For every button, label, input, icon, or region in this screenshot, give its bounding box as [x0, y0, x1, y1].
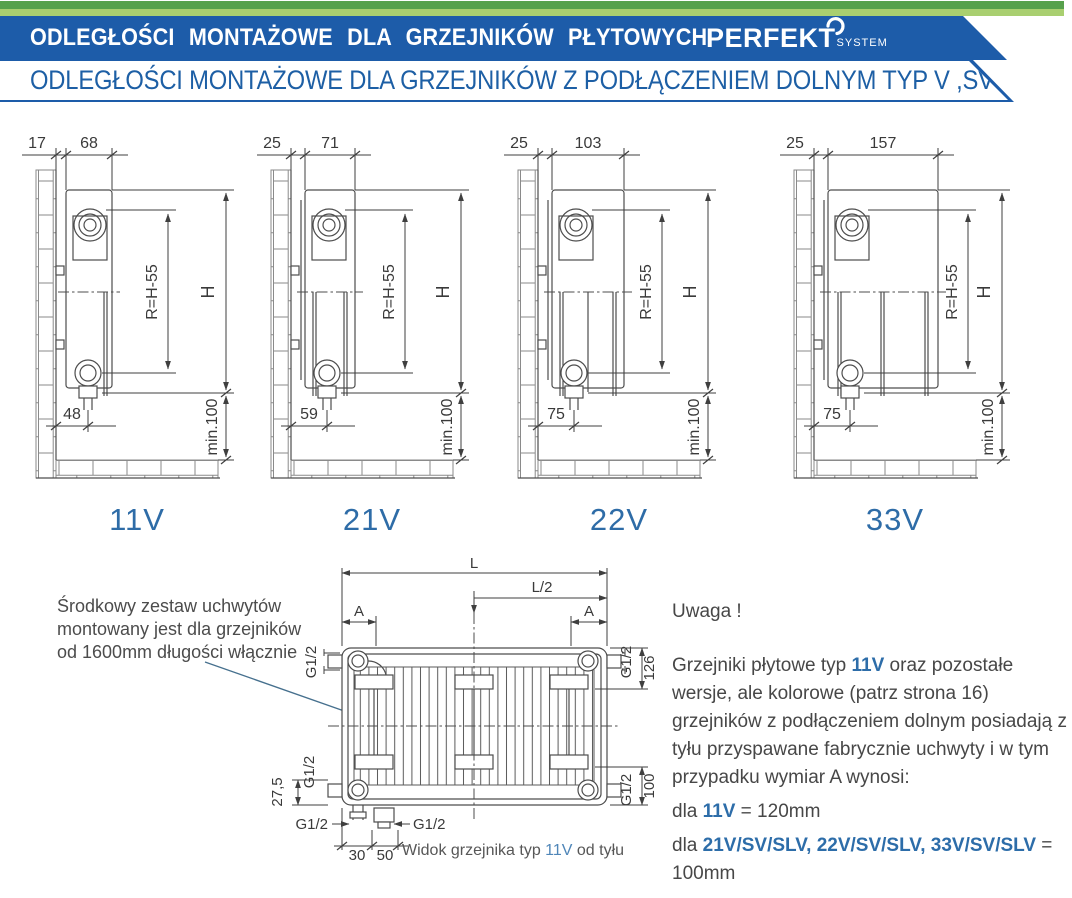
- l3-pre: dla: [672, 835, 703, 856]
- dim-h: H: [198, 286, 218, 299]
- l2-type: 11V: [703, 801, 736, 822]
- bracket: [355, 675, 393, 689]
- dim-50: 50: [377, 847, 394, 864]
- dim-depth: 71: [321, 135, 339, 152]
- dim-100: 100: [641, 773, 658, 798]
- attention-line-11v: dla 11V = 120mm: [672, 798, 1072, 826]
- diagram-22v: 25 103 R=H-55 H min.100 75 22V: [490, 130, 748, 540]
- dim-depth: 157: [870, 135, 897, 152]
- dim-r: R=H-55: [638, 264, 655, 320]
- dim-min: min.100: [980, 398, 997, 455]
- center-bracket-note-line2: montowany jest dla grzejników: [57, 618, 301, 641]
- wall-bracket: [56, 340, 64, 349]
- top-green-strip: [0, 1, 1064, 16]
- center-bracket-note-line1: Środkowy zestaw uchwytów: [57, 595, 301, 618]
- bracket: [355, 755, 393, 769]
- dim-l-half: L/2: [532, 579, 553, 596]
- diagram-33v: 25 157 R=H-55 H min.100 75 33V: [766, 130, 1024, 540]
- dim-min: min.100: [204, 398, 221, 455]
- dim-h: H: [433, 286, 453, 299]
- dim-wall-gap: 25: [786, 135, 804, 152]
- bracket: [550, 755, 588, 769]
- dim-min: min.100: [686, 398, 703, 455]
- diagram-11v: 17 68 R=H-55 H min.100 48 11V: [8, 130, 266, 540]
- attention-paragraph: Grzejniki płytowe typ 11V oraz pozostałe…: [672, 652, 1072, 792]
- attention-p1-type: 11V: [852, 655, 885, 676]
- center-bracket-note-line3: od 1600mm długości włącznie: [57, 641, 301, 664]
- dim-a-right: A: [584, 603, 594, 620]
- logo-hook-icon: [826, 14, 848, 38]
- center-bracket-note: Środkowy zestaw uchwytów montowany jest …: [57, 595, 301, 664]
- dim-a-left: A: [354, 603, 364, 620]
- dim-h: H: [680, 286, 700, 299]
- wall-floor-edges: [36, 170, 220, 478]
- type-label-11v: 11V: [8, 502, 266, 538]
- spec-sheet-page: ODLEGŁOŚCI MONTAŻOWE DLA GRZEJNIKÓW PŁYT…: [0, 0, 1072, 898]
- l2-pre: dla: [672, 801, 703, 822]
- type-label-22v: 22V: [490, 502, 748, 538]
- diagram-22v-drawing: 25 103 R=H-55 H min.100 75: [490, 130, 748, 500]
- brand-logo-sub: SYSTEM: [837, 37, 888, 49]
- dim-depth: 103: [575, 135, 602, 152]
- l2-value: = 120mm: [735, 801, 820, 822]
- dim-bottom: 75: [547, 406, 565, 423]
- l3-types: 21V/SV/SLV, 22V/SV/SLV, 33V/SV/SLV: [703, 835, 1036, 856]
- header-subtitle: ODLEGŁOŚCI MONTAŻOWE DLA GRZEJNIKÓW Z PO…: [30, 61, 1049, 100]
- attention-line-others: dla 21V/SV/SLV, 22V/SV/SLV, 33V/SV/SLV =…: [672, 832, 1072, 888]
- diagram-33v-drawing: 25 157 R=H-55 H min.100 75: [766, 130, 1024, 500]
- dim-bottom: 48: [63, 406, 81, 423]
- dim-min: min.100: [439, 398, 456, 455]
- attention-title: Uwaga !: [672, 598, 1072, 626]
- thread-bottom-right: G1/2: [618, 774, 635, 807]
- dim-r: R=H-55: [144, 264, 161, 320]
- header-banner-sub: ODLEGŁOŚCI MONTAŻOWE DLA GRZEJNIKÓW Z PO…: [0, 61, 1010, 100]
- wall-bricks: [36, 170, 56, 478]
- dim-126: 126: [641, 655, 658, 680]
- thread-pipe-left: G1/2: [295, 816, 328, 833]
- diagram-21v-drawing: 25 71 R=H-55 H min.100 59: [243, 130, 501, 500]
- rear-view-caption: Widok grzejnika typ 11V od tyłu: [402, 842, 624, 860]
- thread-top-right: G1/2: [618, 646, 635, 679]
- floor-bricks: [56, 460, 218, 478]
- header-title: ODLEGŁOŚCI MONTAŻOWE DLA GRZEJNIKÓW PŁYT…: [30, 16, 707, 60]
- dim-wall-gap: 17: [28, 135, 46, 152]
- dim-bottom: 59: [300, 406, 318, 423]
- brand-logo-text: PERFEKT: [706, 23, 836, 54]
- brand-logo: PERFEKT SYSTEM: [706, 16, 888, 60]
- thread-pipe-right: G1/2: [413, 816, 446, 833]
- thread-bottom-left: G1/2: [301, 756, 318, 789]
- caption-post: od tyłu: [572, 842, 624, 859]
- header-banner-sub-border: ODLEGŁOŚCI MONTAŻOWE DLA GRZEJNIKÓW Z PO…: [0, 59, 1014, 102]
- bracket: [550, 675, 588, 689]
- attention-note: Uwaga ! Grzejniki płytowe typ 11V oraz p…: [672, 598, 1072, 888]
- caption-pre: Widok grzejnika typ: [402, 842, 545, 859]
- dim-wall-gap: 25: [510, 135, 528, 152]
- dim-bottom: 75: [823, 406, 841, 423]
- caption-type: 11V: [545, 842, 572, 859]
- dim-r: R=H-55: [381, 264, 398, 320]
- dim-h: H: [974, 286, 994, 299]
- header-banner-main: ODLEGŁOŚCI MONTAŻOWE DLA GRZEJNIKÓW PŁYT…: [0, 16, 1010, 60]
- valve-housing: [73, 216, 107, 260]
- dim-wall-gap: 25: [263, 135, 281, 152]
- type-label-33v: 33V: [766, 502, 1024, 538]
- dim-30: 30: [349, 847, 366, 864]
- wall-bracket: [56, 266, 64, 275]
- dim-l: L: [470, 558, 478, 572]
- dim-depth: 68: [80, 135, 98, 152]
- dim-27-5: 27,5: [270, 777, 286, 806]
- dim-r: R=H-55: [944, 264, 961, 320]
- thread-top-left: G1/2: [303, 646, 320, 679]
- attention-p1-pre: Grzejniki płytowe typ: [672, 655, 852, 676]
- diagram-11v-drawing: 17 68 R=H-55 H min.100 48: [8, 130, 266, 500]
- type-label-21v: 21V: [243, 502, 501, 538]
- diagram-21v: 25 71 R=H-55 H min.100 59 21V: [243, 130, 501, 540]
